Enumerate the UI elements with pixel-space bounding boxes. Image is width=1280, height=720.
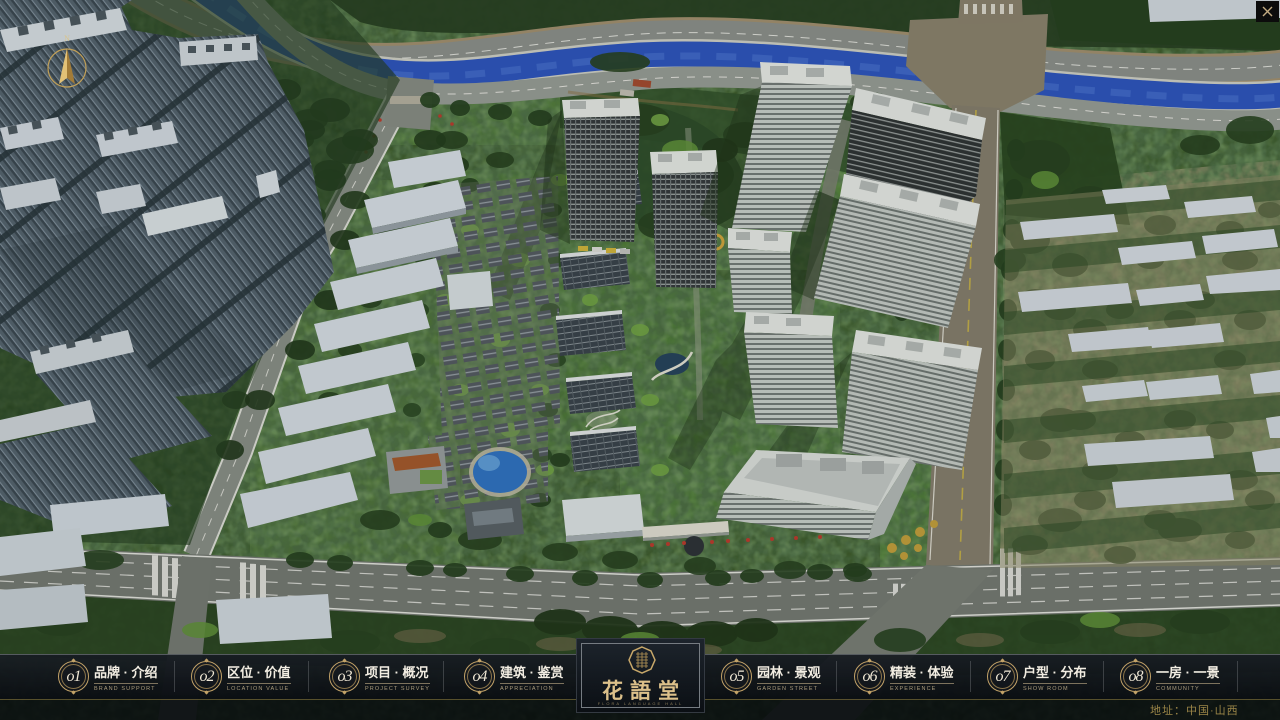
- svg-text:N: N: [64, 34, 70, 43]
